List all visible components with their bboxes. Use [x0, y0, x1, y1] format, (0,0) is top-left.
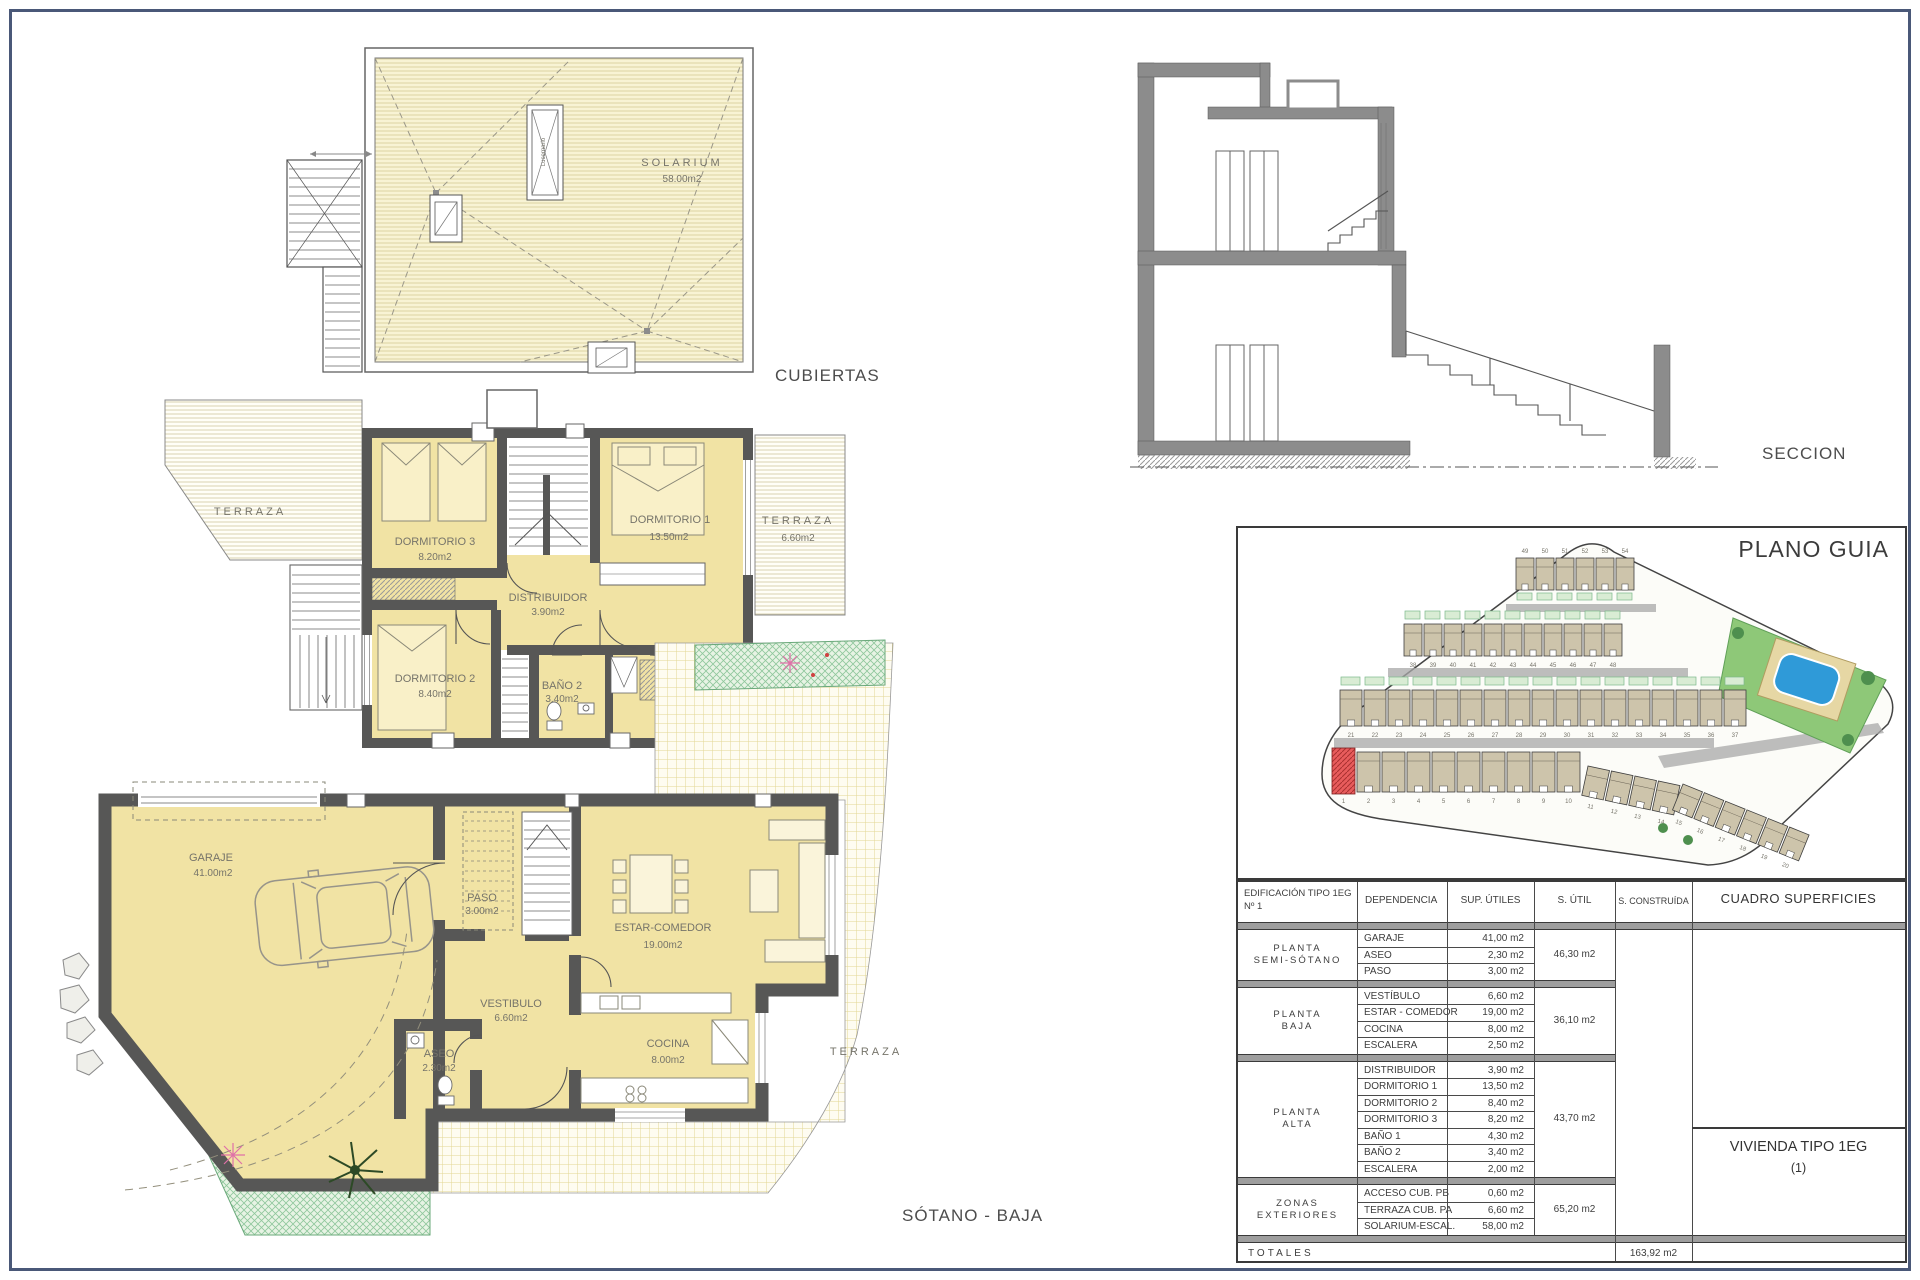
site-unit-number: 45	[1550, 663, 1557, 669]
unit-garden	[1509, 677, 1528, 685]
unit-garden	[1485, 611, 1500, 619]
room-area: 6.60m2	[494, 1013, 528, 1024]
closet-strip	[372, 578, 455, 600]
room-label: GARAJE	[189, 852, 233, 864]
site-unit-number: 33	[1636, 733, 1643, 739]
table-sup-util-value: 8,40 m2	[1447, 1098, 1524, 1110]
table-sup-util-value: 13,50 m2	[1447, 1081, 1524, 1093]
room-area: 8.00m2	[651, 1055, 685, 1066]
unit-door	[1390, 786, 1398, 792]
site-unit-number: 38	[1410, 663, 1417, 669]
table-sup-util-value: 6,60 m2	[1447, 991, 1524, 1003]
ground-floor-plan-drawing: GARAJE 41.00m2 PASO 3.00m2 VESTIBULO 6.6…	[55, 615, 915, 1255]
flower-dot	[811, 673, 815, 677]
table-line	[1357, 1004, 1534, 1005]
unit-door	[1622, 584, 1628, 590]
table-sup-util-value: 58,00 m2	[1447, 1221, 1524, 1233]
table-dependencia-value: BAÑO 1	[1364, 1131, 1401, 1143]
unit-door	[1443, 720, 1450, 726]
table-line	[1357, 1128, 1534, 1129]
unit-garden	[1413, 677, 1432, 685]
table-header-s-construida: S. CONSTRUÍDA	[1615, 895, 1692, 907]
site-unit-number: 10	[1565, 799, 1572, 805]
room-area: 6.60m2	[781, 533, 815, 544]
unit-door	[1419, 720, 1426, 726]
unit-garden	[1725, 677, 1744, 685]
site-unit-number: 41	[1470, 663, 1477, 669]
dimension-arrow	[310, 151, 372, 157]
table-line	[1357, 1095, 1534, 1096]
unit-door	[1587, 720, 1594, 726]
unit-door	[1491, 720, 1498, 726]
table-line	[1534, 882, 1535, 1235]
unit-garden	[1365, 677, 1384, 685]
table-dependencia-value: ASEO	[1364, 950, 1392, 962]
table-header-edificacion: EDIFICACIÓN TIPO 1EG	[1244, 888, 1352, 900]
site-unit-number: 24	[1420, 733, 1427, 739]
unit-door	[1530, 650, 1536, 656]
table-subtotal-value: 46,30 m2	[1534, 949, 1615, 961]
table-line	[1357, 947, 1534, 948]
vivienda-label: VIVIENDA TIPO 1EG	[1692, 1139, 1905, 1155]
table-dependencia-value: ESCALERA	[1364, 1040, 1417, 1052]
unit-door	[1542, 584, 1548, 590]
table-dependencia-value: DORMITORIO 3	[1364, 1114, 1437, 1126]
site-unit-number: 22	[1372, 733, 1379, 739]
site-unit-number: 54	[1622, 549, 1629, 555]
unit-door	[1515, 786, 1523, 792]
table-line	[1357, 1078, 1534, 1079]
unit-door	[1539, 720, 1546, 726]
table-header-cuadro-superficies: CUADRO SUPERFICIES	[1692, 893, 1905, 905]
unit-garden	[1517, 593, 1532, 600]
unit-door	[1635, 720, 1642, 726]
unit-door	[1395, 720, 1402, 726]
plan-title-cubiertas: CUBIERTAS	[775, 366, 880, 386]
terrace-left	[165, 400, 362, 560]
site-unit-number: 21	[1348, 733, 1355, 739]
site-unit-number: 23	[1396, 733, 1403, 739]
unit-garden	[1445, 611, 1460, 619]
room-label: DORMITORIO 1	[630, 514, 710, 526]
table-dependencia-value: BAÑO 2	[1364, 1147, 1401, 1159]
table-floor-label: PLANTAALTA	[1238, 1107, 1357, 1131]
plan-title-sotano: SÓTANO - BAJA	[902, 1206, 1043, 1226]
unit-door	[1611, 720, 1618, 726]
table-dependencia-value: DORMITORIO 1	[1364, 1081, 1437, 1093]
unit-garden	[1461, 677, 1480, 685]
unit-door	[1490, 650, 1496, 656]
unit-door	[1589, 791, 1598, 798]
table-line	[1357, 1021, 1534, 1022]
unit-door	[1465, 786, 1473, 792]
unit-garden	[1537, 593, 1552, 600]
site-unit-number: 36	[1708, 733, 1715, 739]
unit-door	[1707, 720, 1714, 726]
site-unit-number: 47	[1590, 663, 1597, 669]
site-unit-number: 42	[1490, 663, 1497, 669]
unit-garden	[1525, 611, 1540, 619]
site-unit-number: 39	[1430, 663, 1437, 669]
unit-garden	[1565, 611, 1580, 619]
unit-door	[1510, 650, 1516, 656]
table-line	[1357, 1161, 1534, 1162]
unit-door	[1410, 650, 1416, 656]
unit-door	[1565, 786, 1573, 792]
table-subtotal-value: 43,70 m2	[1534, 1113, 1615, 1125]
site-plan-panel: PLANO GUIA 49505152535438394041424344454…	[1236, 526, 1907, 880]
site-unit-number: 32	[1612, 733, 1619, 739]
table-line	[1357, 1111, 1534, 1112]
room-area: 8.20m2	[418, 552, 452, 563]
table-sup-util-value: 0,60 m2	[1447, 1188, 1524, 1200]
unit-door	[1731, 720, 1738, 726]
table-dependencia-value: ESCALERA	[1364, 1164, 1417, 1176]
section-skylight	[1288, 81, 1338, 109]
room-area: 41.00m2	[194, 868, 233, 879]
room-label: PASO	[467, 892, 497, 904]
room-label: COCINA	[647, 1038, 690, 1050]
unit-garden	[1505, 611, 1520, 619]
room-area: 19.00m2	[644, 940, 683, 951]
skylight-lucernario: Lucernario	[527, 105, 563, 200]
table-line	[1615, 882, 1616, 1261]
table-line	[1357, 882, 1358, 1235]
unit-door	[1347, 720, 1354, 726]
table-sup-util-value: 8,00 m2	[1447, 1024, 1524, 1036]
table-separator-band	[1238, 922, 1905, 930]
unit-door	[1365, 786, 1373, 792]
unit-door	[1550, 650, 1556, 656]
table-line	[1357, 1202, 1534, 1203]
site-unit-number: 49	[1522, 549, 1529, 555]
table-floor-label: PLANTABAJA	[1238, 1009, 1357, 1033]
table-floor-label: ZONASEXTERIORES	[1238, 1198, 1357, 1222]
unit-garden	[1597, 593, 1612, 600]
table-sup-util-value: 6,60 m2	[1447, 1205, 1524, 1217]
site-unit-number: 19	[1760, 854, 1769, 862]
unit-garden	[1605, 677, 1624, 685]
table-dependencia-value: VESTÍBULO	[1364, 991, 1420, 1003]
table-totales-label: TOTALES	[1248, 1248, 1314, 1260]
site-unit-number: 50	[1542, 549, 1549, 555]
table-floor-label: PLANTASEMI-SÓTANO	[1238, 943, 1357, 967]
room-label: TERRAZA	[830, 1046, 902, 1058]
table-sup-util-value: 41,00 m2	[1447, 933, 1524, 945]
section-drawing	[1130, 55, 1730, 475]
rocks	[60, 953, 103, 1075]
table-sup-util-value: 2,30 m2	[1447, 950, 1524, 962]
vivienda-number: (1)	[1692, 1161, 1905, 1175]
room-label: ESTAR-COMEDOR	[615, 922, 712, 934]
roof-access-box	[588, 342, 635, 373]
hip-node	[644, 328, 650, 334]
room-area: 3.00m2	[465, 906, 499, 917]
unit-garden	[1389, 677, 1408, 685]
table-separator-band	[1238, 1054, 1615, 1062]
surface-table: EDIFICACIÓN TIPO 1EGNº 1DEPENDENCIASUP. …	[1236, 880, 1907, 1263]
site-unit-highlighted	[1332, 748, 1355, 794]
table-sup-util-value: 4,30 m2	[1447, 1131, 1524, 1143]
section-stairs	[1328, 191, 1654, 435]
table-header-sup-utiles: SUP. ÚTILES	[1447, 895, 1534, 907]
unit-door	[1540, 786, 1548, 792]
unit-door	[1612, 796, 1621, 803]
unit-garden	[1577, 593, 1592, 600]
site-unit-number: 35	[1684, 733, 1691, 739]
unit-garden	[1425, 611, 1440, 619]
unit-door	[1415, 786, 1423, 792]
room-label: SOLARIUM	[641, 157, 722, 169]
site-unit-number: 48	[1610, 663, 1617, 669]
unit-garden	[1653, 677, 1672, 685]
site-unit-number: 43	[1510, 663, 1517, 669]
room-label: DORMITORIO 3	[395, 536, 475, 548]
table-header-edificacion-n: Nº 1	[1244, 901, 1262, 913]
table-separator-band	[1238, 1177, 1615, 1185]
site-unit-number: 26	[1468, 733, 1475, 739]
unit-garden	[1617, 593, 1632, 600]
room-label: TERRAZA	[214, 506, 286, 518]
unit-door	[1522, 584, 1528, 590]
table-dependencia-value: COCINA	[1364, 1024, 1403, 1036]
site-unit-number: 44	[1530, 663, 1537, 669]
unit-door	[1562, 584, 1568, 590]
site-unit-number: 29	[1540, 733, 1547, 739]
table-header-s-util: S. ÚTIL	[1534, 895, 1615, 907]
room-label: VESTIBULO	[480, 998, 542, 1010]
unit-door	[1490, 786, 1498, 792]
unit-door	[1683, 720, 1690, 726]
unit-door	[1659, 720, 1666, 726]
unit-door	[1610, 650, 1616, 656]
unit-door	[1467, 720, 1474, 726]
table-separator-band	[1238, 980, 1615, 988]
stair-shaft	[487, 390, 537, 428]
table-subtotal-value: 36,10 m2	[1534, 1015, 1615, 1027]
unit-garden	[1605, 611, 1620, 619]
site-unit-number: 31	[1588, 733, 1595, 739]
site-plan-drawing: 4950515253543839404142434445464748212223…	[1238, 528, 1905, 878]
unit-garden	[1465, 611, 1480, 619]
unit-door	[1440, 786, 1448, 792]
table-sup-util-value: 2,50 m2	[1447, 1040, 1524, 1052]
roof-exterior-stair	[287, 160, 362, 372]
room-label: ASEO	[424, 1048, 455, 1060]
unit-garden	[1677, 677, 1696, 685]
table-header-dependencia: DEPENDENCIA	[1365, 895, 1437, 907]
table-dependencia-value: PASO	[1364, 966, 1391, 978]
table-dependencia-value: DORMITORIO 2	[1364, 1098, 1437, 1110]
site-unit-number: 52	[1582, 549, 1589, 555]
unit-garden	[1701, 677, 1720, 685]
table-sup-util-value: 3,90 m2	[1447, 1065, 1524, 1077]
unit-door	[1430, 650, 1436, 656]
unit-door	[1590, 650, 1596, 656]
table-dependencia-value: DISTRIBUIDOR	[1364, 1065, 1436, 1077]
unit-garden	[1629, 677, 1648, 685]
table-dependencia-value: ACCESO CUB. PB	[1364, 1188, 1449, 1200]
unit-door	[1659, 806, 1668, 813]
site-unit-number: 53	[1602, 549, 1609, 555]
unit-door	[1371, 720, 1378, 726]
unit-door	[1636, 801, 1645, 808]
unit-door	[1470, 650, 1476, 656]
skylight-label: Lucernario	[541, 137, 547, 166]
table-line	[1447, 882, 1448, 1235]
site-unit-number: 30	[1564, 733, 1571, 739]
flower-dot	[825, 653, 829, 657]
site-unit-number: 27	[1492, 733, 1499, 739]
site-unit-number: 25	[1444, 733, 1451, 739]
unit-garden	[1405, 611, 1420, 619]
table-dependencia-value: ESTAR - COMEDOR	[1364, 1007, 1458, 1019]
table-line	[1357, 963, 1534, 964]
table-line	[1357, 1144, 1534, 1145]
room-area: 13.50m2	[650, 532, 689, 543]
unit-door	[1582, 584, 1588, 590]
unit-garden	[1585, 611, 1600, 619]
unit-garden	[1545, 611, 1560, 619]
site-unit-number: 46	[1570, 663, 1577, 669]
table-sup-util-value: 3,00 m2	[1447, 966, 1524, 978]
section-doors	[1216, 151, 1278, 441]
room-area: 58.00m2	[663, 174, 702, 185]
site-unit-number: 37	[1732, 733, 1739, 739]
room-label: DISTRIBUIDOR	[509, 592, 588, 604]
site-unit-number: 34	[1660, 733, 1667, 739]
table-sup-util-value: 19,00 m2	[1447, 1007, 1524, 1019]
unit-garden	[1437, 677, 1456, 685]
unit-door	[1602, 584, 1608, 590]
unit-garden	[1557, 593, 1572, 600]
roof-plan-drawing: Lucernario SOLARIUM 58.00m2	[230, 30, 770, 380]
site-unit-number: 40	[1450, 663, 1457, 669]
roof-hatch-box	[430, 195, 462, 242]
unit-garden	[1485, 677, 1504, 685]
site-unit-number: 20	[1781, 862, 1790, 870]
unit-garden	[1581, 677, 1600, 685]
unit-door	[1570, 650, 1576, 656]
table-total-built-value: 163,92 m2	[1615, 1248, 1692, 1260]
unit-garden	[1533, 677, 1552, 685]
unit-door	[1450, 650, 1456, 656]
table-dependencia-value: GARAJE	[1364, 933, 1404, 945]
room-area: 2.30m2	[422, 1063, 456, 1074]
table-sup-util-value: 3,40 m2	[1447, 1147, 1524, 1159]
plan-title-seccion: SECCION	[1762, 444, 1846, 464]
unit-door	[1515, 720, 1522, 726]
unit-door	[1563, 720, 1570, 726]
room-label: TERRAZA	[762, 515, 834, 527]
unit-garden	[1557, 677, 1576, 685]
unit-garden	[1341, 677, 1360, 685]
vivienda-tipo-box: VIVIENDA TIPO 1EG(1)	[1692, 1127, 1905, 1261]
table-subtotal-value: 65,20 m2	[1534, 1204, 1615, 1216]
site-unit-number: 51	[1562, 549, 1569, 555]
site-unit-number: 28	[1516, 733, 1523, 739]
table-sup-util-value: 8,20 m2	[1447, 1114, 1524, 1126]
table-sup-util-value: 2,00 m2	[1447, 1164, 1524, 1176]
table-dependencia-value: SOLARIUM-ESCAL.	[1364, 1221, 1455, 1233]
table-line	[1357, 1218, 1534, 1219]
table-dependencia-value: TERRAZA CUB. PA	[1364, 1205, 1452, 1217]
table-line	[1357, 1037, 1534, 1038]
